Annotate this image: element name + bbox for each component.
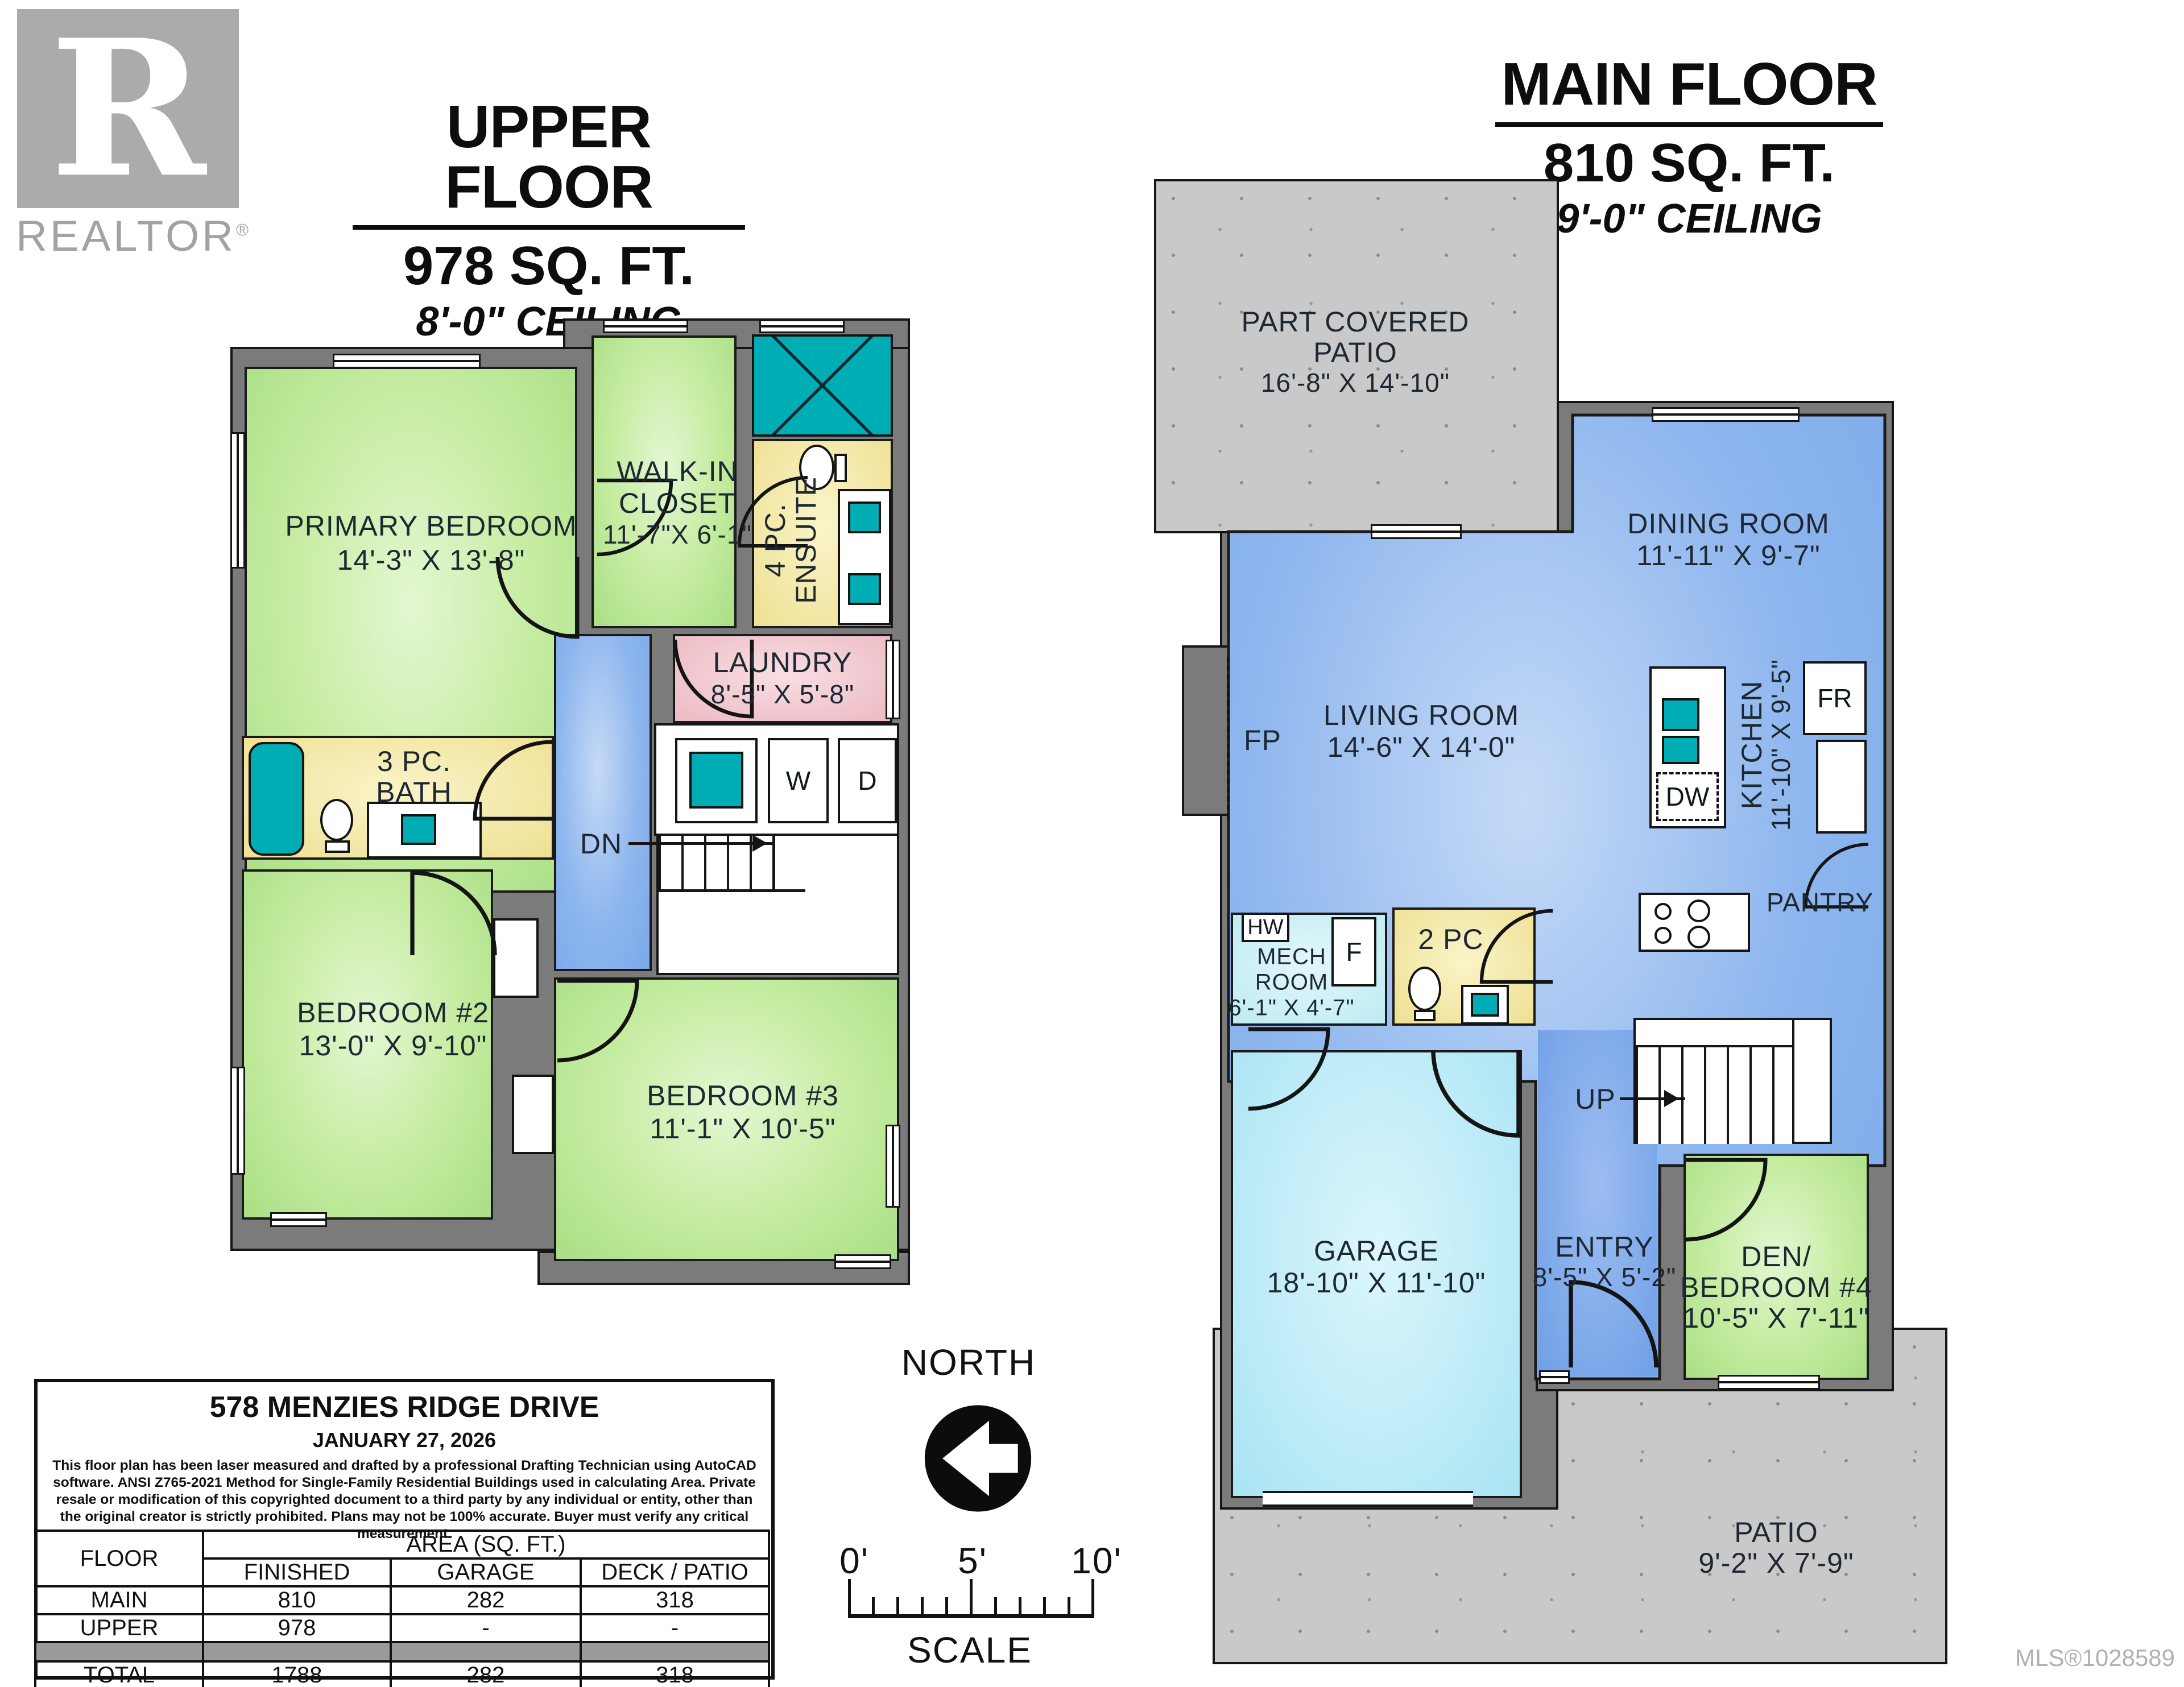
realtor-brand-text: REALTOR	[16, 212, 236, 260]
cell: TOTAL	[35, 1661, 203, 1687]
primary-bedroom-label: PRIMARY BEDROOM	[285, 511, 577, 541]
laundry-dims: 8'-5" X 5'-8"	[711, 681, 854, 709]
bath-sink-icon	[401, 814, 436, 845]
kitchen-sink-icon	[1662, 698, 1699, 731]
dryer-label: D	[858, 765, 876, 796]
mls-number: MLS®1028589	[2015, 1644, 2175, 1672]
dining-label: DINING ROOM	[1627, 508, 1829, 539]
col-garage: GARAGE	[391, 1558, 581, 1586]
realtor-logo-letter: R	[50, 15, 206, 202]
bedroom3-dims: 11'-1" X 10'-5"	[650, 1113, 835, 1144]
bedroom2-dims: 13'-0" X 9'-10"	[299, 1030, 487, 1061]
bath-toilet-icon	[320, 799, 353, 841]
fireplace-dash	[1227, 657, 1230, 819]
mech-label2: ROOM	[1255, 970, 1328, 994]
window	[270, 1212, 327, 1227]
dishwasher-label: DW	[1666, 781, 1710, 812]
entry-sill	[1539, 1370, 1570, 1384]
kitchen-label: KITCHEN 11'-10" X 9'-5"	[1736, 659, 1796, 831]
garage-door-opening	[1263, 1491, 1473, 1507]
tick	[1019, 1597, 1021, 1614]
tick	[1043, 1597, 1046, 1614]
cell: MAIN	[35, 1586, 203, 1614]
covered-patio-dims: 16'-8" X 14'-10"	[1261, 369, 1450, 397]
dining-dims: 11'-11" X 9'-7"	[1636, 540, 1820, 571]
registered-mark: ®	[236, 221, 251, 240]
cell: 1788	[203, 1661, 391, 1687]
scale-tick-10: 10'	[1071, 1540, 1122, 1582]
north-arrow-icon	[923, 1399, 1033, 1518]
window	[759, 320, 845, 333]
furnace-label: F	[1346, 936, 1362, 967]
upper-hallway	[554, 634, 652, 971]
kitchen-name: KITCHEN	[1736, 659, 1767, 831]
window	[1652, 407, 1800, 422]
stove	[1639, 893, 1750, 952]
kitchen-counter	[1816, 740, 1867, 834]
den-label2: BEDROOM #4	[1680, 1272, 1872, 1303]
upper-floor-area: 978 SQ. FT.	[353, 239, 745, 293]
walkin-label2: CLOSET	[619, 488, 736, 519]
patio-label: PATIO	[1734, 1517, 1818, 1548]
walkin-dims: 11'-7"X 6'-1"	[603, 521, 752, 549]
realtor-wordmark: REALTOR®	[16, 215, 243, 258]
window	[230, 1067, 245, 1175]
up-arrow-icon	[1620, 1097, 1685, 1100]
laundry-sink-icon	[689, 752, 743, 809]
door-arc	[1248, 1029, 1328, 1109]
up-label: UP	[1575, 1084, 1615, 1114]
area-header: AREA (SQ. FT.)	[203, 1531, 769, 1558]
garage-dims: 18'-10" X 11'-10"	[1267, 1267, 1486, 1298]
washer-label: W	[786, 765, 810, 796]
tick	[970, 1579, 973, 1614]
table-row-empty	[35, 1642, 769, 1661]
address: 578 MENZIES RIDGE DRIVE	[38, 1392, 771, 1422]
floor-plan-page: R REALTOR® UPPER FLOOR 978 SQ. FT. 8'-0"…	[0, 0, 2184, 1687]
area-table: FLOOR AREA (SQ. FT.) FINISHED GARAGE DEC…	[34, 1530, 770, 1687]
window	[1371, 524, 1462, 539]
upper-floor-title-block: UPPER FLOOR 978 SQ. FT. 8'-0" CEILING	[353, 97, 745, 342]
burner-icon	[1654, 903, 1672, 920]
ensuite-sink2-icon	[848, 573, 881, 605]
ensuite-sink-icon	[848, 501, 881, 533]
down-arrow-icon	[628, 842, 773, 845]
bath-label1: 3 PC.	[377, 746, 451, 777]
ensuite-line2: ENSUITE	[791, 476, 821, 604]
upper-floor-plan: W D PRIMARY BEDROOM 14'-3" X 13'	[230, 318, 910, 1296]
table-row-upper: UPPER 978 - -	[35, 1614, 769, 1642]
window	[603, 320, 688, 333]
entry-dims: 8'-5" X 5'-2"	[1533, 1263, 1676, 1292]
floor-header: FLOOR	[35, 1531, 203, 1586]
tick	[1068, 1597, 1070, 1614]
kitchen-dims: 11'-10" X 9'-5"	[1767, 659, 1796, 831]
realtor-logo-icon: R	[17, 9, 239, 208]
col-finished: FINISHED	[203, 1558, 391, 1586]
plan-date: JANUARY 27, 2026	[38, 1430, 771, 1450]
tick	[896, 1597, 899, 1614]
scale-bar	[848, 1582, 1094, 1618]
kitchen-sink2-icon	[1662, 736, 1699, 764]
furnace: F	[1331, 917, 1376, 986]
scale-tick-0: 0'	[839, 1540, 869, 1582]
dishwasher: DW	[1656, 772, 1719, 821]
fp-label: FP	[1244, 725, 1281, 756]
burner-icon	[1654, 927, 1672, 944]
powder-sink-icon	[1471, 993, 1499, 1017]
col-deck: DECK / PATIO	[581, 1558, 769, 1586]
dryer: D	[838, 738, 897, 823]
powder-toilet-tank	[1414, 1010, 1436, 1021]
window	[886, 1125, 900, 1208]
pantry-label: PANTRY	[1767, 889, 1873, 917]
scale-tick-5: 5'	[958, 1540, 987, 1582]
cell	[35, 1642, 203, 1661]
door-arc	[412, 873, 495, 955]
laundry-label: LAUNDRY	[713, 647, 852, 678]
front-door-arc	[1571, 1282, 1656, 1367]
table-row-total: TOTAL 1788 282 318	[35, 1661, 769, 1687]
main-stair-treads	[1636, 1045, 1792, 1144]
tick	[872, 1597, 875, 1614]
fridge: FR	[1803, 661, 1867, 735]
cell: 978	[203, 1614, 391, 1642]
bath-label2: BATH	[376, 777, 452, 807]
closet-jog	[493, 918, 539, 998]
cell	[203, 1642, 391, 1661]
door-arc	[475, 742, 552, 819]
covered-patio-label1: PART COVERED	[1242, 306, 1470, 337]
covered-patio-label2: PATIO	[1313, 337, 1397, 368]
table-row: FLOOR AREA (SQ. FT.)	[35, 1531, 769, 1558]
den-label1: DEN/	[1741, 1241, 1811, 1272]
powder-label: 2 PC	[1418, 924, 1483, 955]
hw-label: HW	[1247, 915, 1283, 940]
main-floor-title: MAIN FLOOR	[1495, 54, 1883, 127]
window	[834, 1254, 891, 1269]
cell: 318	[581, 1586, 769, 1614]
upper-stair-rail	[659, 889, 805, 892]
ensuite-line1: 4 PC.	[760, 476, 791, 604]
burner-icon	[1687, 900, 1710, 922]
burner-icon	[1687, 926, 1710, 948]
bath-toilet-tank	[325, 840, 350, 853]
main-stairs	[1633, 1018, 1832, 1144]
cell: -	[581, 1614, 769, 1642]
door-arc	[557, 981, 637, 1060]
shower-icon	[752, 334, 893, 437]
primary-bedroom-dims: 14'-3" X 13'-8"	[337, 545, 526, 575]
cell	[391, 1642, 581, 1661]
garage-label: GARAGE	[1314, 1236, 1439, 1266]
closet-jog	[512, 1075, 554, 1154]
den-dims: 10'-5" X 7'-11"	[1683, 1303, 1869, 1333]
tick	[921, 1597, 924, 1614]
table-row-main: MAIN 810 282 318	[35, 1586, 769, 1614]
bedroom2-label: BEDROOM #2	[297, 997, 489, 1028]
living-dims: 14'-6" X 14'-0"	[1327, 732, 1516, 762]
scale-label: SCALE	[907, 1629, 1032, 1671]
powder-toilet-icon	[1408, 967, 1441, 1011]
cell: -	[391, 1614, 581, 1642]
main-stair-rail	[1792, 1020, 1794, 1144]
tick	[848, 1579, 851, 1614]
ensuite-toilet-tank	[834, 454, 847, 482]
door-arc	[1482, 911, 1553, 982]
tick	[994, 1597, 997, 1614]
cell: UPPER	[35, 1614, 203, 1642]
hot-water-tank: HW	[1242, 913, 1289, 942]
fireplace-bump	[1182, 645, 1231, 816]
tick	[945, 1597, 948, 1614]
walkin-label: WALK-IN	[617, 456, 738, 487]
tick	[1091, 1579, 1094, 1614]
north-label: NORTH	[901, 1341, 1036, 1383]
patio-dims: 9'-2" X 7'-9"	[1698, 1548, 1854, 1578]
ensuite-label: 4 PC. ENSUITE	[760, 476, 821, 604]
cell: 318	[581, 1661, 769, 1687]
window	[333, 354, 481, 368]
entry-label: ENTRY	[1555, 1232, 1654, 1262]
door-arc	[1433, 1050, 1519, 1135]
bedroom3-label: BEDROOM #3	[647, 1080, 839, 1111]
door-arc	[1686, 1160, 1765, 1240]
cell: 810	[203, 1586, 391, 1614]
washer: W	[768, 738, 829, 823]
fridge-label: FR	[1817, 683, 1852, 714]
living-label: LIVING ROOM	[1323, 700, 1519, 731]
dn-label: DN	[580, 828, 622, 859]
mech-dims: 6'-1" X 4'-7"	[1228, 996, 1354, 1020]
cell	[581, 1642, 769, 1661]
cell: 282	[391, 1661, 581, 1687]
cell: 282	[391, 1586, 581, 1614]
mech-label1: MECH	[1257, 944, 1326, 969]
window	[886, 640, 900, 719]
upper-floor-title: UPPER FLOOR	[353, 97, 745, 230]
main-floor-plan: DW FR HW F PAR	[1149, 159, 1962, 1672]
window	[1718, 1375, 1820, 1390]
window	[230, 432, 245, 569]
bathtub-icon	[249, 742, 304, 856]
